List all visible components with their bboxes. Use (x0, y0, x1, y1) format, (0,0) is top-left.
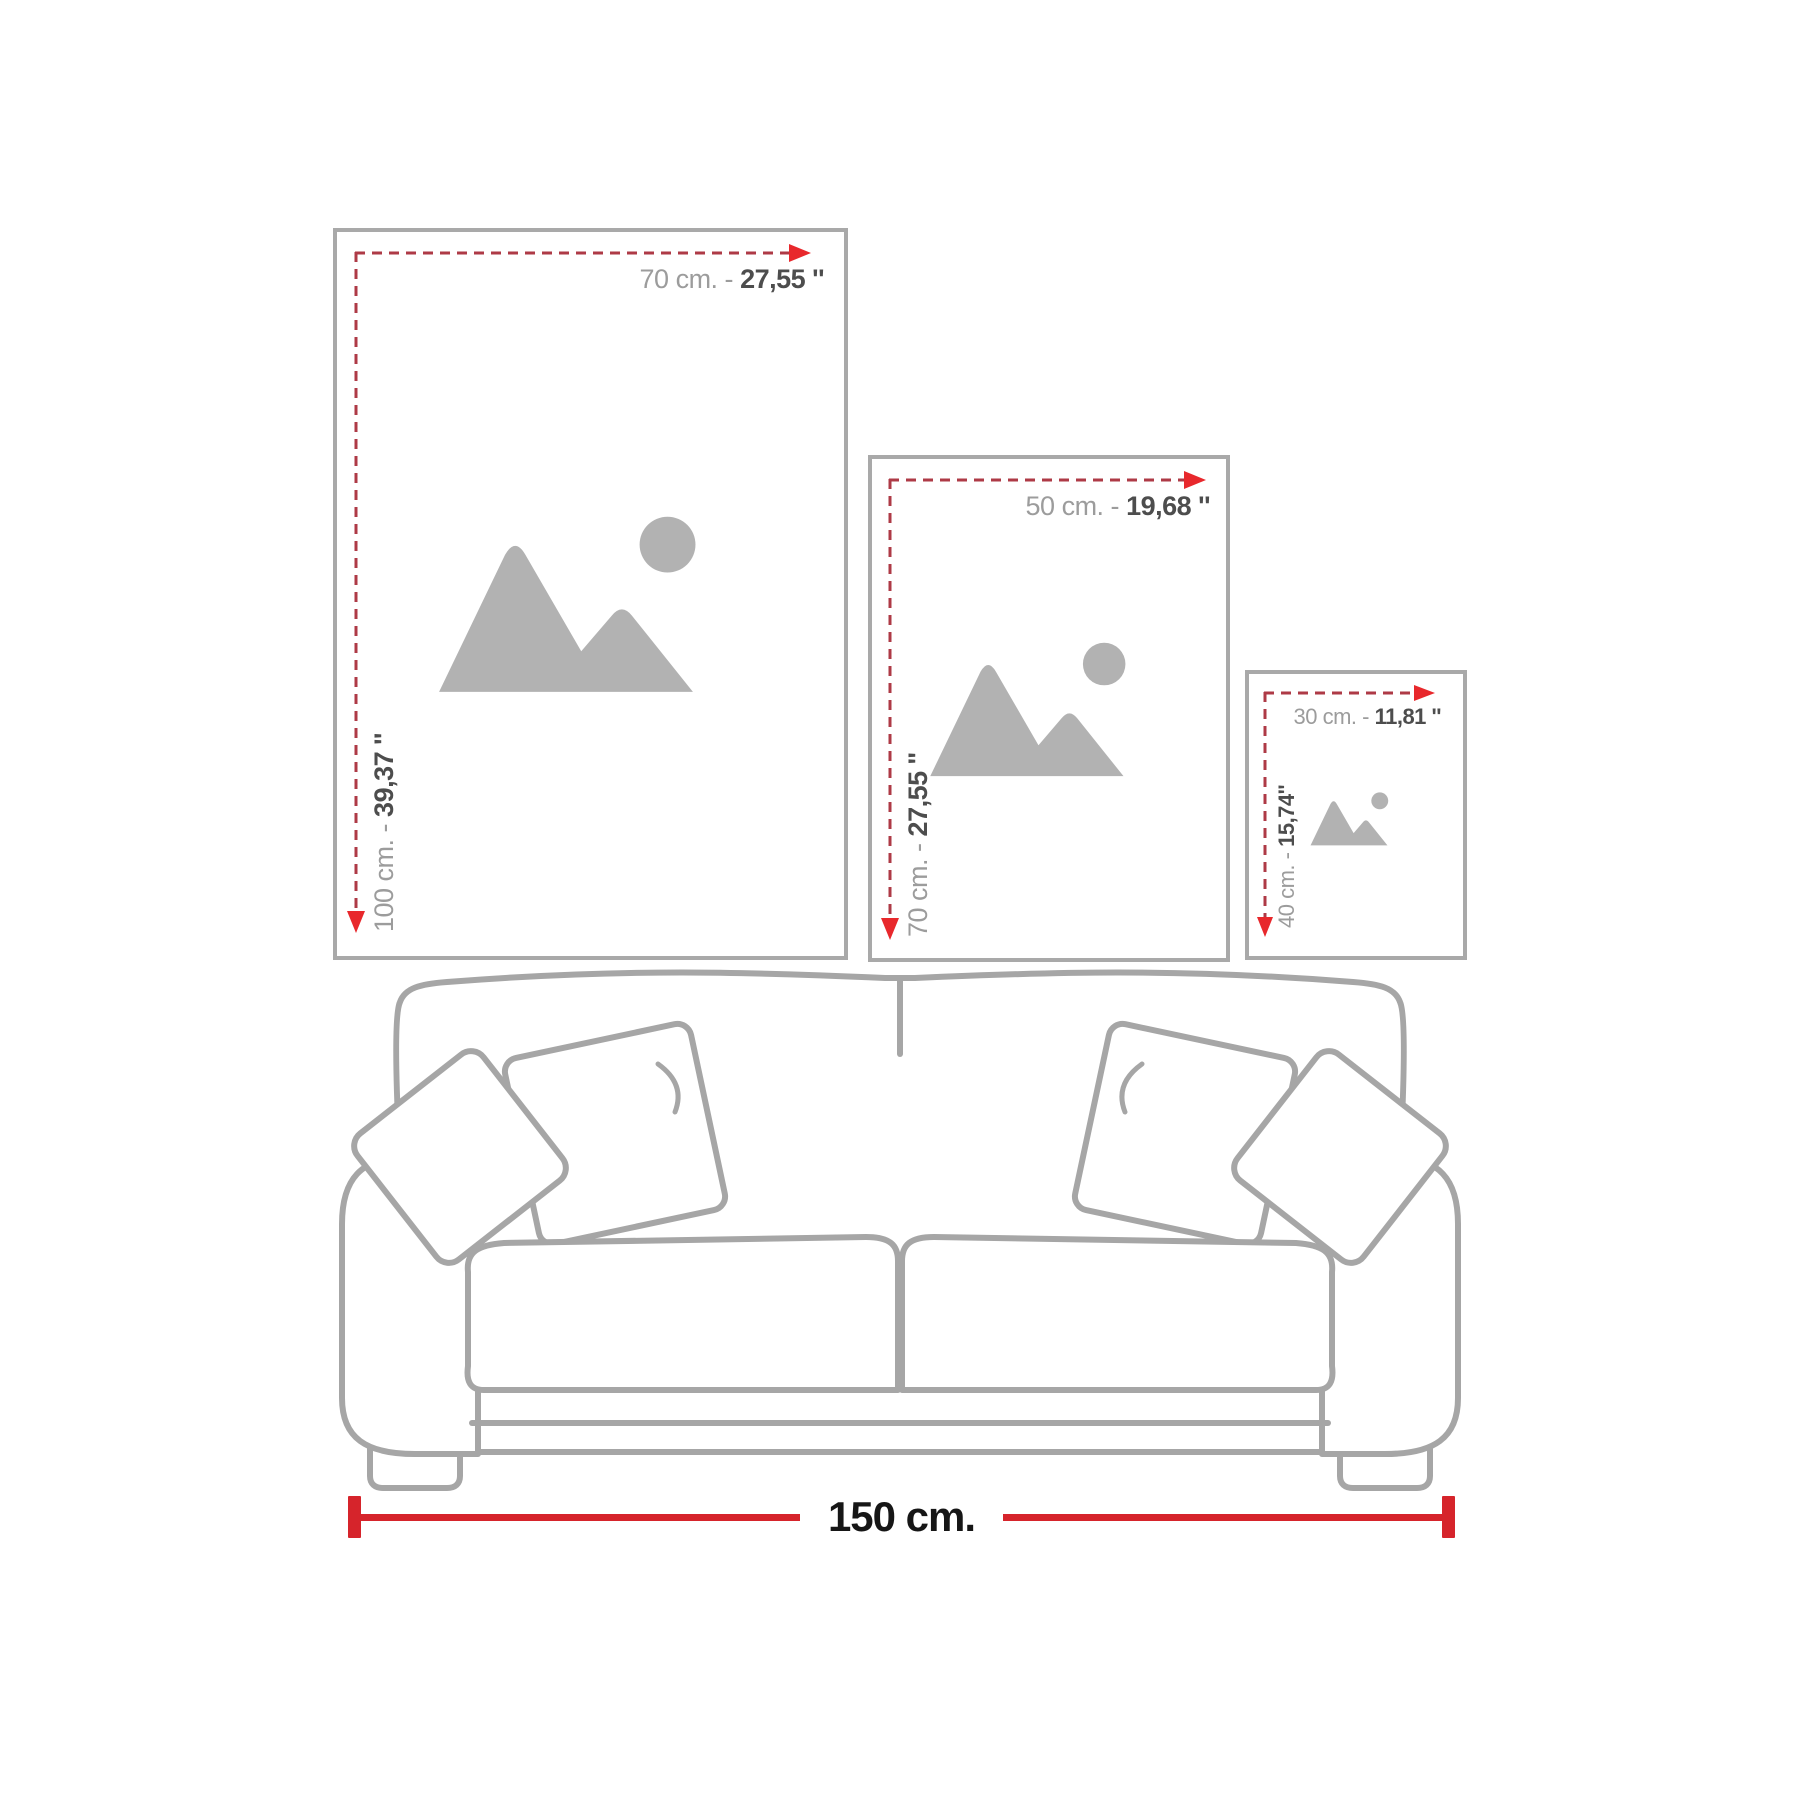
arrow-down-icon (1257, 917, 1273, 937)
frame-medium: 50 cm. - 19,68 '' 70 cm. - 27,55 '' (868, 455, 1230, 962)
height-cm-text: 40 cm. - (1274, 853, 1299, 928)
image-placeholder-icon (926, 637, 1178, 780)
arrow-right-icon (1414, 685, 1435, 701)
measure-line-left (361, 1514, 800, 1521)
image-placeholder-icon (434, 509, 764, 697)
width-dimension-label: 30 cm. - 11,81 '' (1293, 706, 1441, 728)
width-cm-text: 70 cm. - (640, 264, 734, 294)
measure-line-right (1003, 1514, 1442, 1521)
measure-end-cap-right (1442, 1496, 1455, 1538)
sofa-width-label: 150 cm. (828, 1496, 975, 1538)
width-cm-text: 30 cm. - (1293, 704, 1368, 729)
frame-large: 70 cm. - 27,55 '' 100 cm. - 39,37 '' (333, 228, 848, 960)
sofa-illustration (320, 962, 1480, 1507)
height-inch-text: 39,37 '' (369, 733, 399, 817)
seat-cushion-left (468, 1237, 898, 1390)
width-cm-text: 50 cm. - (1026, 491, 1120, 521)
height-dimension-label: 70 cm. - 27,55 '' (905, 753, 932, 937)
arrow-down-icon (347, 911, 365, 933)
width-inch-text: 19,68 '' (1126, 491, 1210, 521)
width-dimension-label: 70 cm. - 27,55 '' (640, 266, 824, 293)
height-cm-text: 100 cm. - (369, 824, 399, 932)
height-dimension-label: 40 cm. - 15,74'' (1276, 785, 1298, 928)
width-inch-text: 27,55 '' (740, 264, 824, 294)
arrow-right-icon (1184, 471, 1206, 489)
arrow-right-icon (789, 244, 811, 262)
width-inch-text: 11,81 '' (1375, 704, 1441, 729)
sofa-width-measure: 150 cm. (348, 1496, 1455, 1538)
seat-cushion-right (902, 1237, 1332, 1390)
height-cm-text: 70 cm. - (903, 843, 933, 937)
arrow-down-icon (881, 918, 899, 940)
measure-end-cap-left (348, 1496, 361, 1538)
image-placeholder-icon (1309, 790, 1409, 847)
width-dimension-label: 50 cm. - 19,68 '' (1026, 493, 1210, 520)
frame-small: 30 cm. - 11,81 '' 40 cm. - 15,74'' (1245, 670, 1467, 960)
height-dimension-label: 100 cm. - 39,37 '' (371, 733, 398, 932)
height-inch-text: 15,74'' (1274, 785, 1299, 847)
size-guide-diagram: 70 cm. - 27,55 '' 100 cm. - 39,37 '' 50 … (0, 0, 1800, 1800)
